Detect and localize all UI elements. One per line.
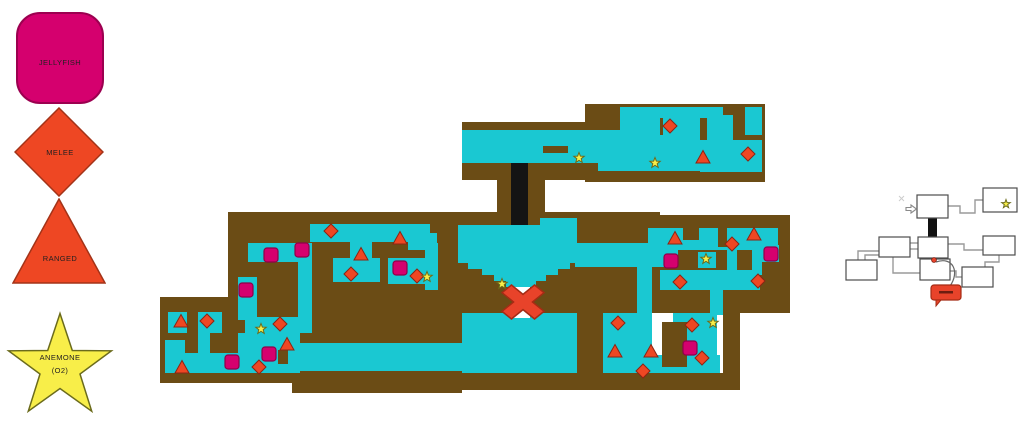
jellyfish-marker [264,248,278,262]
map-water [660,135,700,171]
diagram-connector [865,255,879,260]
diagram-black-link [928,218,937,238]
map-land-intrusion [683,228,699,240]
map-water [727,250,737,275]
map-water [275,343,465,371]
melee-legend-label: MELEE [0,148,120,157]
jellyfish-marker [239,283,253,297]
diagram-room-box [962,267,993,287]
diagram-connector [893,257,920,273]
ranged-legend-label: RANGED [0,254,120,263]
map-water [468,263,570,269]
legend: JELLYFISH MELEE RANGED ANEMONE (O2) [0,0,160,434]
map-land [723,313,740,373]
diagram-connector [948,244,983,250]
anemone-legend-sublabel: (O2) [0,366,120,375]
map-water [198,333,210,353]
map-water [245,317,300,338]
map-water [745,107,762,135]
map-land-intrusion [278,350,288,364]
jellyfish-marker [225,355,239,369]
map-water [458,225,577,263]
jellyfish-marker [664,254,678,268]
map-water [408,233,437,250]
map-land [292,371,462,393]
diagram-connector [950,271,962,277]
diagram-room-box [918,237,948,258]
map-water [707,115,733,145]
map-land-intrusion [187,312,198,333]
entry-arrow-icon [906,205,917,213]
jellyfish-marker [683,341,697,355]
ranged-legend-shape [12,198,106,284]
diagram-room-box [983,188,1017,212]
map-land [577,313,603,373]
jellyfish-marker [295,243,309,257]
faint-x-mark [899,196,904,201]
jellyfish-marker [393,261,407,275]
level-map-image: JELLYFISH MELEE RANGED ANEMONE (O2) [0,0,1023,434]
map-water [710,290,723,315]
map-water [462,313,577,373]
map-land [460,373,740,390]
diagram-room-box [983,236,1015,255]
jellyfish-legend-label: JELLYFISH [0,58,120,67]
map-water [640,115,660,153]
diagram-boss-dot [932,258,937,263]
diagram-room-box [846,260,877,280]
anemone-legend-shape [5,310,115,415]
map-water [540,218,577,225]
map-land [300,313,462,343]
jellyfish-marker [764,247,778,261]
diagram-connector [985,255,999,267]
callout-tail [936,300,941,306]
jellyfish-marker [262,347,276,361]
anemone-legend-label: ANEMONE [0,353,120,362]
diagram-room-box [917,195,948,218]
map-elevator-shaft [511,163,528,225]
map-water [752,240,762,275]
diagram-room-box [879,237,910,257]
map-water [482,269,558,275]
diagram-connector [948,200,983,213]
callout-text-line [939,291,953,294]
map-land-intrusion [543,146,568,153]
